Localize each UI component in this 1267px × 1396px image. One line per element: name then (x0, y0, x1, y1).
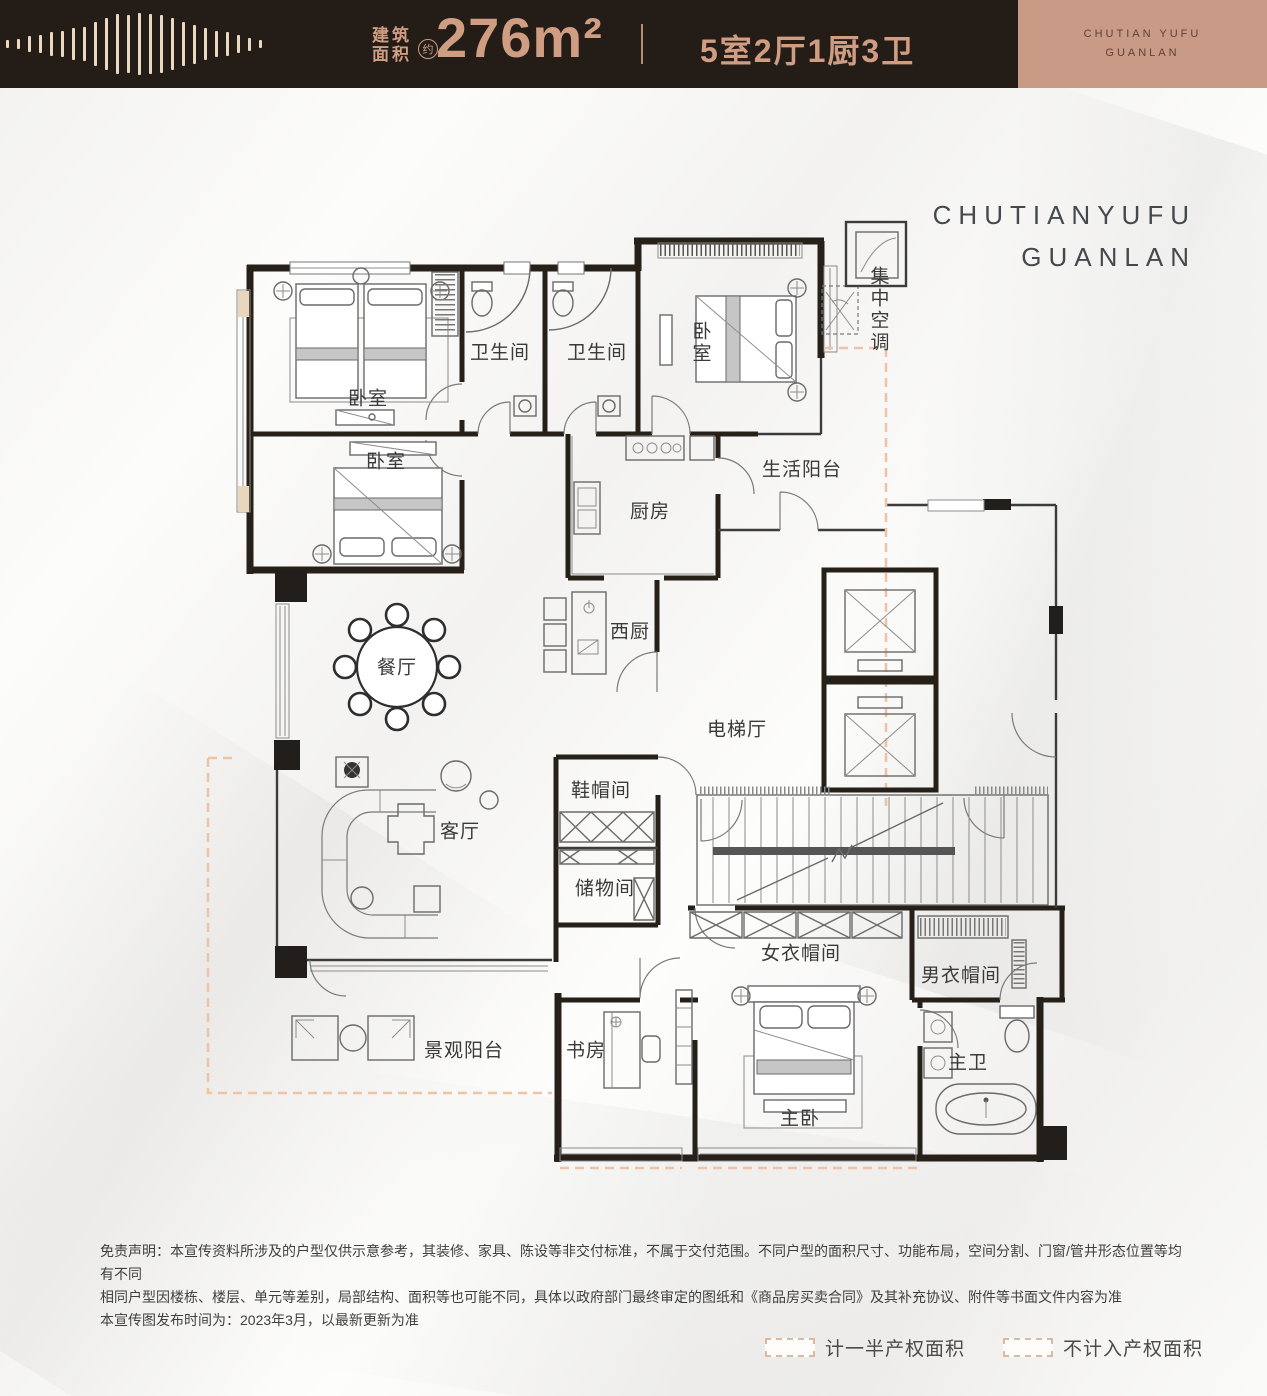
tick-bar (105, 18, 108, 70)
window-sill-accent (238, 486, 249, 512)
brand-block: CHUTIAN YUFU GUANLAN (1018, 0, 1267, 88)
half-area-label: 计一半产权面积 (825, 1334, 965, 1361)
tick-bar (116, 14, 119, 74)
tick-bar (6, 40, 9, 48)
column-block (275, 570, 307, 602)
room-label-kitchen: 厨房 (630, 497, 670, 524)
header-divider (641, 24, 643, 64)
floor-plan-drawing (190, 215, 1100, 1190)
tick-bar (149, 14, 152, 74)
room-label-bathroom-1: 卫生间 (470, 338, 530, 365)
room-label-bedroom-top-left: 卧室 (348, 384, 388, 411)
room-label-dining-room: 餐厅 (377, 653, 417, 680)
tick-bar (204, 28, 207, 59)
tick-bar (127, 15, 130, 72)
room-label-shoe-closet: 鞋帽间 (571, 776, 631, 803)
approx-badge: 约 (418, 39, 438, 59)
tick-bar (171, 18, 174, 70)
legend-item-half-area: 计一半产权面积 (765, 1334, 965, 1361)
column-block (983, 499, 1011, 510)
tick-bar (259, 40, 262, 48)
disclaimer-line1: 免责声明：本宣传资料所涉及的户型仅供示意参考，其装修、家具、陈设等非交付标准，不… (100, 1240, 1190, 1286)
tick-bar (237, 35, 240, 53)
built-area-label: 建筑 面积 约 (372, 26, 412, 64)
room-label-men-wardrobe: 男衣帽间 (921, 961, 1001, 988)
tick-bar (28, 36, 31, 52)
layout-summary: 5室2厅1厨3卫 (700, 26, 915, 72)
header-bar: 建筑 面积 约 276m² 5室2厅1厨3卫 (0, 0, 1018, 88)
room-label-master-bedroom: 主卧 (780, 1104, 820, 1131)
brand-line1: CHUTIAN YUFU (1084, 25, 1202, 44)
elevator-shafts (824, 570, 936, 790)
room-label-elevator-hall: 电梯厅 (707, 715, 767, 742)
living-room-furniture (322, 757, 498, 938)
tick-pattern-decoration (6, 0, 270, 88)
west-kitchen-fixtures (544, 592, 606, 674)
staircase (697, 791, 1048, 905)
brand-line2: GUANLAN (1105, 44, 1179, 63)
room-label-bedroom-top-right: 卧室 (687, 321, 714, 365)
room-label-central-ac: 集中空调 (865, 266, 892, 354)
room-label-master-bathroom: 主卫 (948, 1048, 988, 1075)
tick-bar (160, 15, 163, 72)
tick-bar (61, 31, 64, 57)
disclaimer-line2: 相同户型因楼栋、楼层、单元等差别，局部结构、面积等也可能不同，具体以政府部门最终… (100, 1286, 1190, 1309)
tick-bar (94, 22, 97, 66)
balcony-furniture (292, 1016, 414, 1060)
built-area-value: 276m² (436, 8, 603, 68)
tick-bar (39, 35, 42, 53)
tick-bar (226, 32, 229, 55)
column-block (275, 946, 307, 978)
room-label-view-balcony: 景观阳台 (424, 1036, 504, 1063)
room-label-storage-room: 储物间 (575, 874, 635, 901)
half-area-swatch (765, 1338, 815, 1357)
excluded-area-swatch (1003, 1338, 1053, 1357)
room-label-women-wardrobe: 女衣帽间 (761, 939, 841, 966)
window-sill-accent (238, 291, 249, 317)
column-block (1040, 1126, 1067, 1160)
tick-bar (215, 31, 218, 57)
tick-bar (138, 13, 141, 75)
room-label-west-kitchen: 西厨 (610, 617, 650, 644)
tick-bar (50, 32, 53, 55)
study-furniture (604, 990, 692, 1088)
tick-bar (17, 39, 20, 49)
tick-bar (193, 25, 196, 64)
tick-bar (72, 28, 75, 59)
column-block (1049, 606, 1063, 634)
excluded-area-label: 不计入产权面积 (1063, 1334, 1203, 1361)
column-block (274, 740, 300, 770)
room-label-bathroom-2: 卫生间 (567, 338, 627, 365)
legend-item-excluded-area: 不计入产权面积 (1003, 1334, 1203, 1361)
built-area-cn: 建筑 面积 (372, 26, 412, 64)
room-label-living-room: 客厅 (440, 817, 480, 844)
floorplan-page: 建筑 面积 约 276m² 5室2厅1厨3卫 CHUTIAN YUFU GUAN… (0, 0, 1267, 1396)
disclaimer-line3: 本宣传图发布时间为：2023年3月，以最新更新为准 (100, 1309, 1190, 1332)
tick-bar (248, 38, 251, 51)
room-label-bedroom-left: 卧室 (366, 447, 406, 474)
tick-bar (83, 27, 86, 61)
area-legend: 计一半产权面积 不计入产权面积 (765, 1334, 1203, 1361)
disclaimer: 免责声明：本宣传资料所涉及的户型仅供示意参考，其装修、家具、陈设等非交付标准，不… (100, 1240, 1190, 1332)
room-label-living-balcony: 生活阳台 (762, 455, 842, 482)
tick-bar (182, 22, 185, 66)
bedroom3-furniture (660, 279, 806, 401)
room-label-study: 书房 (566, 1036, 606, 1063)
